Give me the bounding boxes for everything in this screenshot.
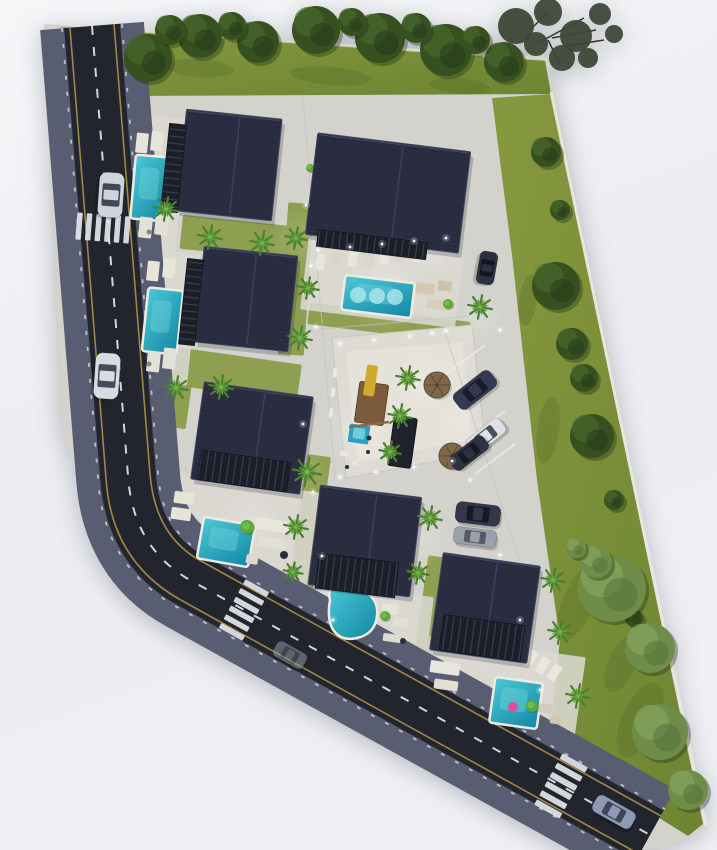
path-light (445, 330, 448, 333)
path-light (349, 246, 352, 249)
tree-texture (587, 429, 609, 451)
outdoor-lounger (437, 280, 452, 292)
site-plan-figure (0, 0, 717, 850)
path-light (499, 329, 502, 332)
tree-texture (253, 36, 274, 57)
bush-highlight (444, 300, 450, 306)
tree-texture (653, 724, 681, 752)
tree-texture (473, 36, 487, 50)
umbrella-pole (436, 384, 439, 387)
pool-water-highlight (138, 167, 160, 201)
path-light (539, 689, 542, 692)
palm-crown (388, 450, 391, 453)
palm-crown (551, 578, 555, 582)
tree-foliage-cluster (549, 45, 575, 71)
tree-texture (542, 148, 557, 163)
outdoor-table (400, 638, 406, 644)
path-light (375, 471, 378, 474)
outdoor-lounger (550, 715, 563, 725)
palm-crown (558, 630, 562, 634)
palm-crown (416, 571, 419, 574)
palm-crown (478, 305, 482, 309)
tree-foliage-cluster (589, 3, 611, 25)
path-light (445, 237, 448, 240)
bush-highlight (381, 612, 387, 618)
palm-crown (428, 516, 432, 520)
outdoor-lounger (150, 130, 164, 151)
palm-crown (174, 386, 178, 390)
pool-lounge-circle (369, 288, 385, 304)
villa-4 (191, 382, 317, 499)
playground-equipment (367, 436, 372, 441)
car-roof (472, 507, 483, 521)
villa-5 (308, 485, 424, 602)
villa-1-roof (176, 109, 282, 220)
tree-texture (574, 545, 584, 555)
tree-texture (550, 279, 574, 303)
path-light (499, 554, 502, 557)
tree-texture (229, 22, 243, 36)
path-light (339, 476, 342, 479)
palm-crown (292, 571, 295, 574)
villa-6 (430, 553, 544, 669)
tree-texture (558, 207, 568, 217)
palm-crown (406, 376, 410, 380)
palm-crown (294, 525, 298, 529)
car-sedan-north (94, 171, 125, 220)
tree-texture (683, 784, 703, 804)
pool-float (508, 702, 518, 712)
pool-lounge-circle (387, 289, 403, 305)
path-light (302, 423, 305, 426)
path-light (305, 204, 308, 207)
outdoor-table (280, 551, 288, 559)
tree-foliage-cluster (605, 25, 623, 43)
outdoor-lounger (138, 216, 153, 238)
tree-texture (644, 641, 669, 666)
path-light (321, 555, 324, 558)
path-light (339, 343, 342, 346)
path-light (519, 619, 522, 622)
palm-crown (298, 336, 302, 340)
path-light (312, 491, 315, 494)
outdoor-lounger (146, 260, 160, 281)
outdoor-lounger (415, 282, 434, 295)
tree-texture (604, 578, 638, 612)
path-light (413, 240, 416, 243)
palm-crown (294, 236, 297, 239)
tree-texture (310, 23, 334, 47)
kids-pool-highlight (352, 427, 365, 440)
tree-texture (440, 42, 466, 68)
villa-1 (160, 109, 285, 225)
palm-crown (208, 235, 212, 239)
path-light (373, 339, 376, 342)
palm-crown (260, 241, 264, 245)
path-light (409, 335, 412, 338)
path-light (315, 326, 318, 329)
outdoor-lounger (162, 347, 177, 369)
pool-lounge-circle (350, 287, 366, 303)
path-light (310, 265, 313, 268)
car-roof (99, 370, 115, 381)
tree-texture (568, 339, 584, 355)
palm-crown (219, 385, 223, 389)
path-light (317, 249, 320, 252)
car-sedan-west (90, 352, 121, 402)
site-plan-root (44, 0, 711, 850)
villa-2 (179, 246, 301, 356)
car-roof (470, 531, 481, 542)
tree-texture (612, 497, 622, 507)
bush-highlight (528, 702, 535, 709)
palm-crown (398, 414, 402, 418)
playground-equipment (366, 450, 370, 454)
bush-highlight (242, 522, 250, 530)
outdoor-lounger (162, 257, 176, 278)
tree-texture (499, 56, 519, 76)
tree-texture (166, 26, 181, 41)
tree-texture (374, 31, 399, 56)
path-light (332, 619, 335, 622)
tree-texture (592, 557, 608, 573)
palm-crown (306, 286, 309, 289)
playground-bench (352, 461, 358, 466)
tree-texture (195, 29, 217, 51)
path-light (431, 332, 434, 335)
site-plan-rendering (0, 0, 717, 850)
path-light (413, 466, 416, 469)
path-light (381, 243, 384, 246)
outdoor-lounger (135, 132, 149, 153)
pool-water-highlight (150, 300, 172, 334)
tree-texture (581, 374, 595, 388)
tree-texture (412, 24, 427, 39)
outdoor-lounger (146, 350, 161, 372)
path-light (469, 479, 472, 482)
car-roof (103, 190, 119, 201)
outdoor-table (147, 362, 152, 367)
villa-2-roof (194, 246, 298, 351)
tree-foliage-cluster (578, 48, 598, 68)
tree-texture (349, 18, 363, 32)
outdoor-table (147, 230, 152, 235)
tree-foliage-cluster (524, 32, 548, 56)
palm-crown (164, 207, 168, 211)
tree-texture (142, 51, 166, 75)
bush-highlight (307, 165, 311, 169)
path-light (451, 460, 454, 463)
palm-crown (305, 470, 309, 474)
palm-crown (576, 694, 580, 698)
playground-equipment (345, 465, 349, 469)
